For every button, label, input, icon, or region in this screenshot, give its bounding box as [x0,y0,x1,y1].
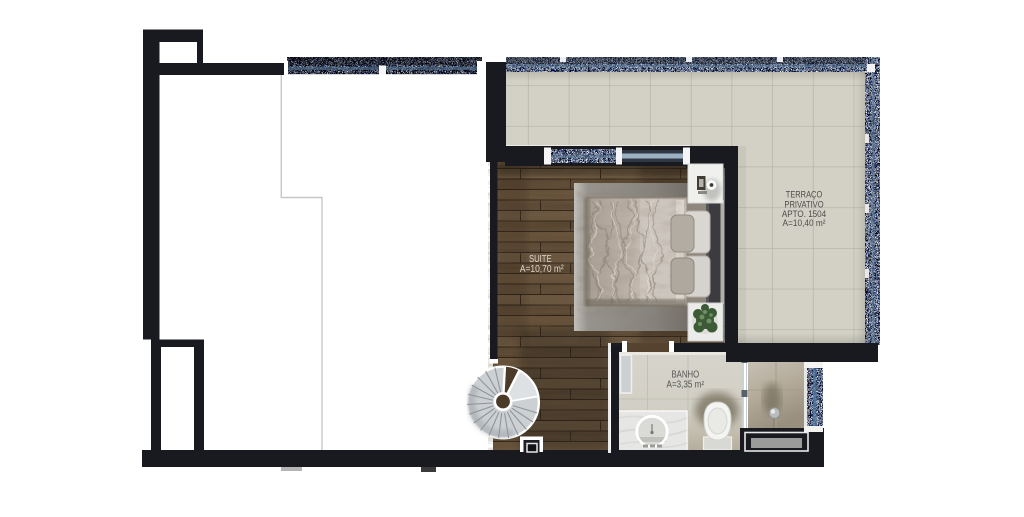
svg-text:A=3,35 m²: A=3,35 m² [667,379,705,390]
svg-text:A=10,40 m²: A=10,40 m² [783,218,826,228]
svg-text:A=10,70 m²: A=10,70 m² [520,263,564,275]
